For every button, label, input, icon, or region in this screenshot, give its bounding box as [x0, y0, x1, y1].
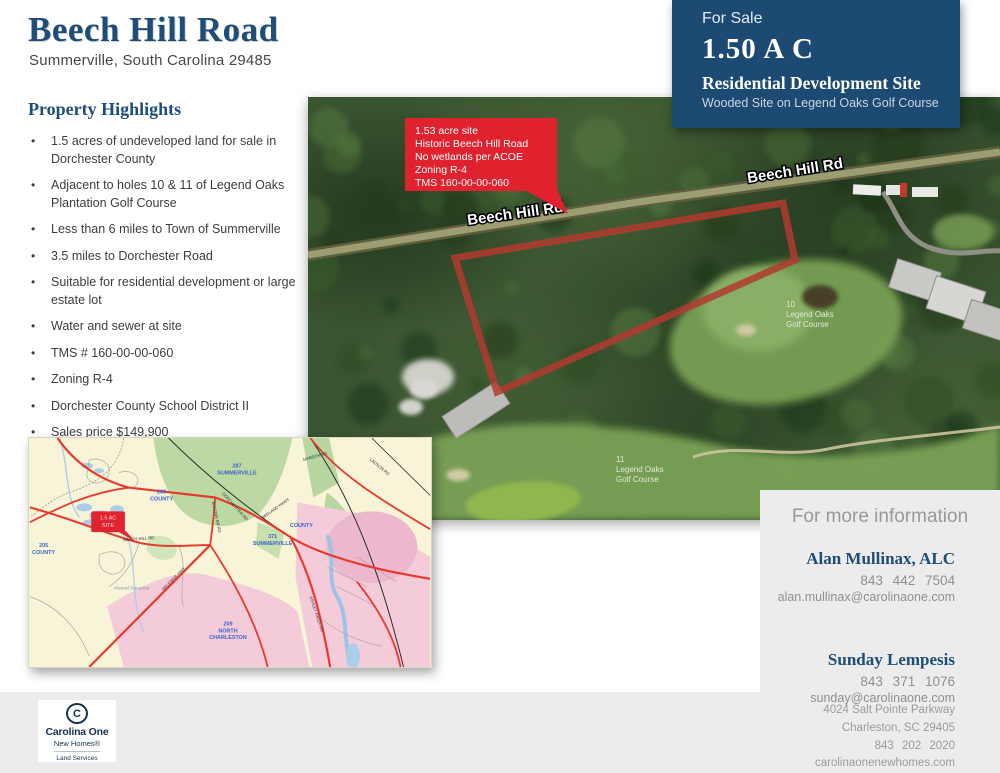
site-type: Residential Development Site: [702, 73, 960, 94]
highlight-item: Suitable for residential development or …: [28, 274, 296, 309]
svg-text:287: 287: [232, 464, 241, 470]
red-container: [900, 183, 907, 197]
golf-fairways: [418, 214, 1000, 520]
carolina-one-c-icon: C: [66, 703, 88, 724]
office-phone: 843 202 2020: [815, 738, 955, 756]
for-sale-label: For Sale: [702, 10, 960, 28]
svg-text:1.5 AC: 1.5 AC: [100, 515, 116, 521]
highlight-item: Less than 6 miles to Town of Summerville: [28, 221, 296, 239]
svg-text:COUNTY: COUNTY: [32, 550, 55, 556]
office-info: 4024 Salt Pointe Parkway Charleston, SC …: [815, 702, 955, 773]
agent-phone: 843 442 7504: [760, 573, 955, 588]
company-logo: C Carolina One New Homes® Land Services: [38, 700, 116, 762]
agent-name: Alan Mullinax, ALC: [760, 549, 955, 569]
highlight-item: Dorchester County School District II: [28, 398, 296, 416]
office-address-line2: Charleston, SC 29405: [815, 720, 955, 738]
flyer-page: Beech Hill Road Summerville, South Carol…: [0, 0, 1000, 773]
svg-text:SUMMERVILLE: SUMMERVILLE: [253, 541, 293, 547]
svg-text:Round Savanna: Round Savanna: [114, 586, 150, 592]
agents: Alan Mullinax, ALC 843 442 7504 alan.mul…: [760, 549, 1000, 705]
logo-division: Land Services: [56, 755, 97, 762]
sand-bunker: [736, 324, 756, 336]
svg-text:205: 205: [39, 543, 48, 549]
sand-bunker: [446, 469, 470, 481]
svg-text:209: 209: [223, 621, 232, 627]
highlights-heading: Property Highlights: [28, 99, 181, 120]
highlight-item: Zoning R-4: [28, 371, 296, 389]
highlights-list: 1.5 acres of undeveloped land for sale i…: [28, 133, 296, 451]
tree-clump: [802, 285, 838, 309]
svg-text:371: 371: [268, 534, 277, 540]
svg-text:208: 208: [157, 490, 166, 496]
highlight-item: Water and sewer at site: [28, 318, 296, 336]
acreage-value: 1.50 A C: [702, 33, 960, 66]
highlight-item: TMS # 160-00-00-060: [28, 345, 296, 363]
agent-phone: 843 371 1076: [760, 674, 955, 689]
for-sale-banner: For Sale 1.50 A C Residential Developmen…: [672, 0, 960, 128]
agent-name: Sunday Lempesis: [760, 650, 955, 670]
agent-email[interactable]: alan.mullinax@carolinaone.com: [760, 590, 955, 604]
logo-brand: Carolina One: [46, 726, 109, 738]
highlight-item: 3.5 miles to Dorchester Road: [28, 248, 296, 266]
svg-text:COUNTY: COUNTY: [290, 523, 313, 529]
svg-text:NORTH: NORTH: [218, 628, 237, 634]
highlight-item: 1.5 acres of undeveloped land for sale i…: [28, 133, 296, 168]
office-address-line1: 4024 Salt Pointe Parkway: [815, 702, 955, 720]
site-descriptor: Wooded Site on Legend Oaks Golf Course: [702, 96, 960, 110]
contact-heading: For more information: [760, 506, 1000, 528]
contact-panel: For more information Alan Mullinax, ALC …: [760, 490, 1000, 773]
svg-text:CHARLESTON: CHARLESTON: [209, 635, 247, 641]
office-website[interactable]: carolinaonenewhomes.com: [815, 755, 955, 773]
highlight-item: Adjacent to holes 10 & 11 of Legend Oaks…: [28, 177, 296, 212]
logo-divider: [54, 751, 100, 752]
svg-text:SUMMERVILLE: SUMMERVILLE: [217, 471, 257, 477]
svg-text:SITE: SITE: [102, 523, 114, 529]
trailer: [853, 184, 881, 195]
page-title: Beech Hill Road: [28, 10, 279, 50]
location-map: 287 SUMMERVILLE 208 COUNTY 371 SUMMERVIL…: [28, 437, 432, 668]
street-map: 287 SUMMERVILLE 208 COUNTY 371 SUMMERVIL…: [29, 438, 431, 667]
page-subtitle: Summerville, South Carolina 29485: [29, 52, 272, 69]
trailer: [912, 187, 938, 197]
svg-text:COUNTY: COUNTY: [150, 496, 173, 502]
logo-subbrand: New Homes®: [54, 739, 100, 748]
